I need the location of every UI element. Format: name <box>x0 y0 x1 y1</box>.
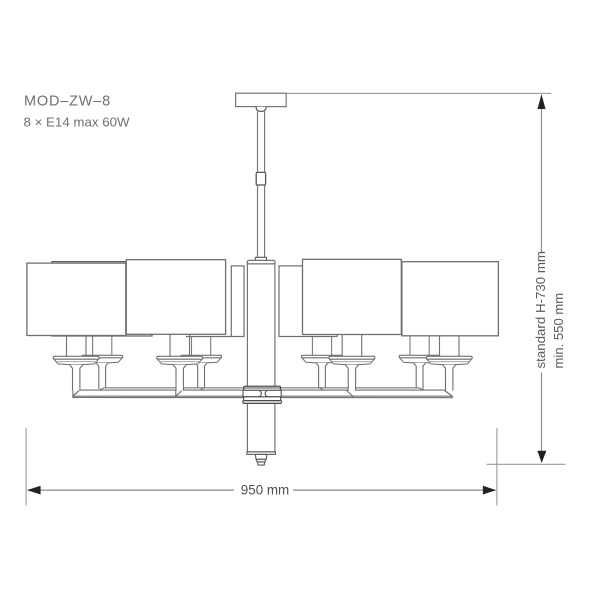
svg-text:MOD–ZW–8: MOD–ZW–8 <box>24 94 111 110</box>
svg-text:min. 550 mm: min. 550 mm <box>551 293 566 369</box>
svg-text:950 mm: 950 mm <box>241 482 289 497</box>
svg-text:8 × E14 max 60W: 8 × E14 max 60W <box>24 115 131 130</box>
svg-text:standard H-730 mm: standard H-730 mm <box>533 251 548 369</box>
